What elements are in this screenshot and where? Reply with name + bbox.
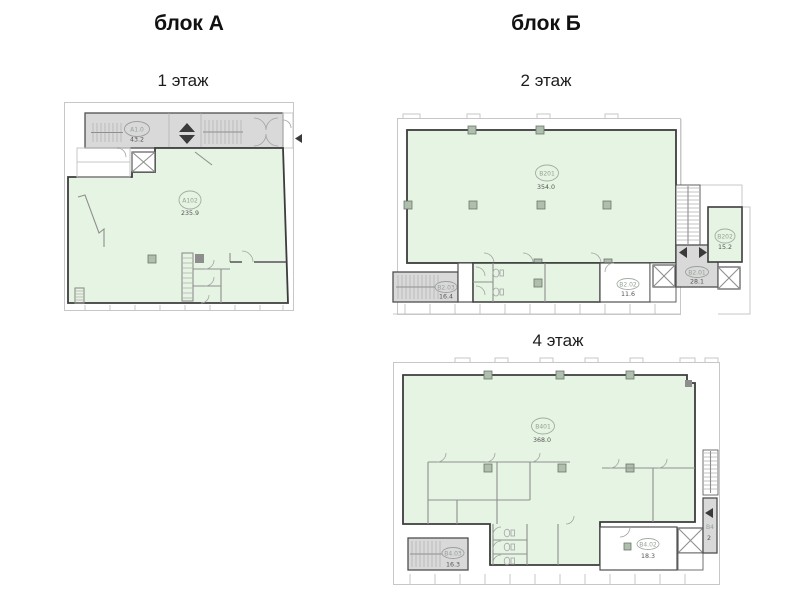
room-id: В2.01 [688,270,706,277]
facade-window-ticks [85,305,283,310]
column [484,371,492,379]
room-area: 235.9 [181,210,199,217]
room-area: 43.2 [130,137,144,144]
room-area: 354.0 [537,184,555,191]
facade-window-ticks [405,304,655,314]
column [148,255,156,263]
facade-bumps [455,358,718,362]
floor-2-title: 2 этаж [446,71,646,91]
door-arc [117,148,126,157]
column [626,371,634,379]
column [624,543,631,550]
room-id: В201 [539,171,555,178]
room-area: 15.2 [718,244,732,251]
room-a102-shape [68,148,288,303]
floorplan-block-b-floor-2: В201 354.0 В2.03 16.4 В2.02 [390,106,762,318]
room-id: А102 [182,198,198,205]
room-area: 11.6 [621,291,635,298]
column [536,126,544,134]
floorplan-block-a-floor-1: А1.0 43.2 [55,96,303,318]
stairs-b2 [676,185,700,245]
room-b201-shape [407,130,676,263]
room-id: А1.0 [130,127,144,134]
column [603,201,611,209]
column [404,201,412,209]
floor-1-title: 1 этаж [83,71,283,91]
entrance-arrow-icon [295,134,302,143]
room-id: В4.03 [444,551,462,558]
room-b201: В201 354.0 [404,126,676,267]
room-a102: А102 235.9 [68,148,288,303]
duct [195,254,204,263]
column [484,464,492,472]
column [556,371,564,379]
room-area: 16.4 [439,294,453,301]
facade-window-ticks [410,574,685,584]
bay-window [77,148,130,177]
room-id: В401 [535,424,551,431]
corner-duct [685,380,692,387]
corridor [458,263,473,302]
room-id: В4.02 [639,542,657,549]
room-b202: В202 15.2 [708,207,742,262]
floorplan-page: блок А блок Б 1 этаж 2 этаж 4 этаж А1.0 … [0,0,800,600]
room-id: В2.03 [437,285,455,292]
wc-zone [473,263,600,302]
room-area: 28.1 [690,279,704,286]
room-shape [600,527,677,570]
block-b-title: блок Б [446,12,646,36]
block-a-title: блок А [89,12,289,36]
lobby-b4-01: В4 2 [703,498,717,553]
room-id: В202 [717,234,733,241]
column [558,464,566,472]
room-area: 368.0 [533,437,551,444]
column [469,201,477,209]
door-arc [283,120,291,128]
column [468,126,476,134]
floor-4-title: 4 этаж [458,331,658,351]
side-room-outline [283,113,293,148]
core-room [678,553,703,570]
corridor-zone-a10: А1.0 43.2 [85,113,283,148]
floorplan-block-b-floor-4: В401 368.0 В4.03 16.3 В4.02 18.3 [390,352,762,592]
stairwell-b4-03: В4.03 16.3 [408,538,468,570]
column [537,201,545,209]
room-id: В2.02 [619,282,637,289]
side-room [283,113,293,148]
stairs-b4 [703,450,718,495]
room-b4-02: В4.02 18.3 [600,527,677,570]
column [534,279,542,287]
stairwell-b2-03: В2.03 16.4 [393,272,458,302]
facade-bumps [403,114,618,118]
room-b2-02: В2.02 11.6 [600,263,650,302]
room-area: 16.3 [446,562,460,569]
room-area: 2 [707,535,711,542]
room-id: В4 [706,524,714,531]
room-area: 18.3 [641,553,655,560]
